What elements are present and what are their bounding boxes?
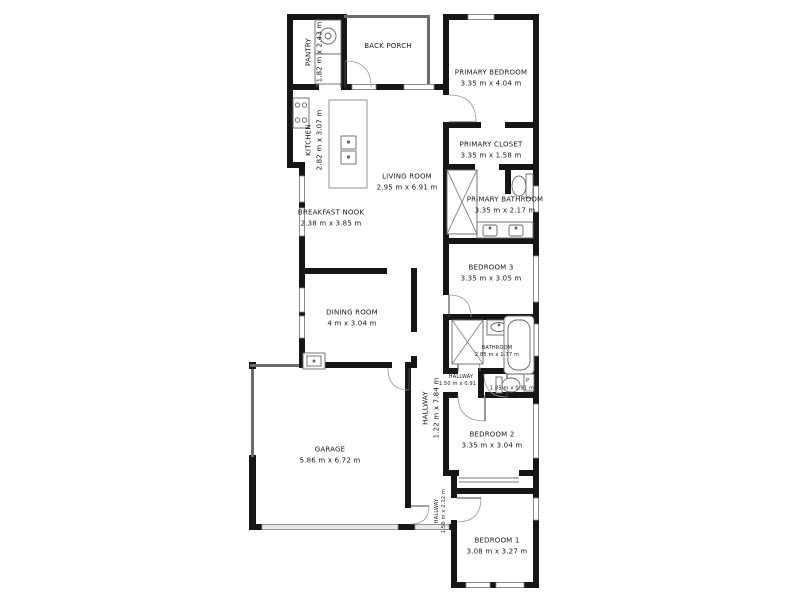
room-label-bedroom-3: BEDROOM 3 3.35 m x 3.05 m [461,263,522,284]
room-label-toilet-room: 1.85 m x 0.91 m [490,386,534,393]
garage-door [262,525,449,530]
room-label-hallway-main: HALLWAY 1.22 m x 7.84 m [421,378,442,439]
room-label-primary-bedroom: PRIMARY BEDROOM 3.35 m x 4.04 m [455,68,527,89]
room-label-dining-room: DINING ROOM 4 m x 3.04 m [326,308,378,329]
closet-sliders [459,477,519,483]
interior-walls [299,20,539,494]
vanity-sink-icon [477,222,533,238]
room-label-bathroom: BATHROOM 2.85 m x 1.77 m [475,345,519,359]
floor-plan: P PANTRY 1.82 m x 2.43 m BACK PORCH PRIM… [0,0,800,600]
floorplan-drawing: P [0,0,800,600]
room-label-kitchen: KITCHEN 2.82 m x 3.07 m [304,110,325,171]
room-label-pantry: PANTRY 1.82 m x 2.43 m [304,22,325,83]
exterior-walls [249,14,539,588]
room-label-primary-bathroom: PRIMARY BATHROOM 3.35 m x 2.17 m [467,195,544,216]
utility-sink-icon [303,353,325,369]
room-label-hallway-small: HALLWAY 1.50 m x 0.91 m [439,374,483,388]
room-label-breakfast-nook: BREAKFAST NOOK 2.38 m x 3.85 m [298,208,364,229]
room-label-bedroom-2: BEDROOM 2 3.35 m x 3.04 m [462,430,523,451]
room-label-garage: GARAGE 5.86 m x 6.72 m [300,445,361,466]
kitchen-island [329,100,367,188]
room-label-back-porch: BACK PORCH [364,41,412,52]
room-label-bedroom-1: BEDROOM 1 3.08 m x 3.27 m [467,536,528,557]
room-label-primary-closet: PRIMARY CLOSET 3.35 m x 1.58 m [460,140,523,161]
room-label-living-room: LIVING ROOM 2.95 m x 6.91 m [377,172,438,193]
room-label-hallway-lower: HALLWAY 1.50 m x 2.12 m [434,489,448,533]
